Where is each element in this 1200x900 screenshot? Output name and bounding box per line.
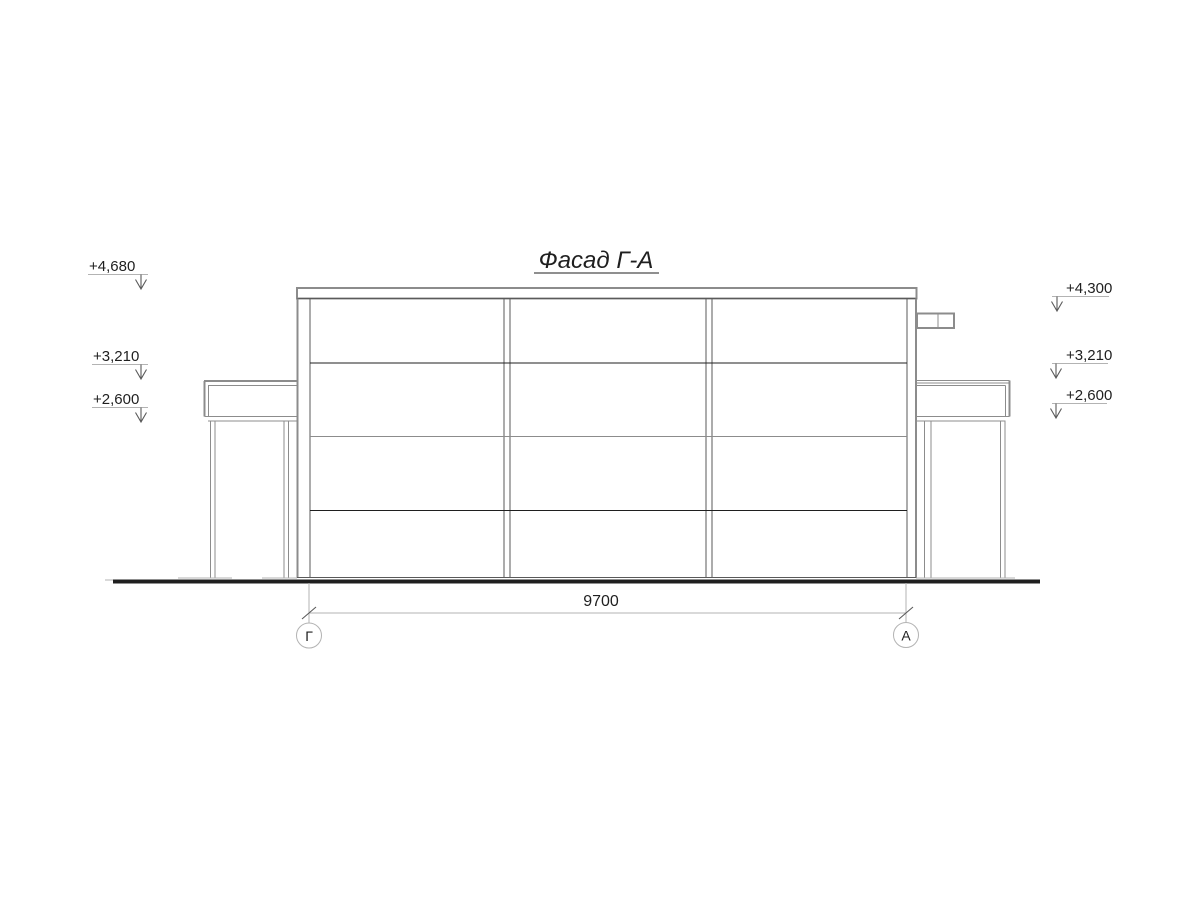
dimension-9700: 9700 (302, 583, 913, 624)
page-title: Фасад Г-А (539, 247, 654, 274)
axis-marker-right: А (894, 623, 919, 648)
elevation-mark-left-3210: +3,210 (92, 348, 148, 379)
ground (105, 578, 1040, 582)
elevation-arrow-icon (136, 408, 147, 423)
elevation-mark-right-3210: +3,210 (1051, 347, 1113, 378)
elevation-arrow-icon (1052, 297, 1063, 312)
elevation-arrow-icon (1051, 364, 1062, 379)
facade-horizontal-lines (310, 363, 907, 511)
elevation-drawing-sheet: Фасад Г-А (0, 0, 1200, 900)
axis-label: Г (305, 628, 313, 644)
facade-drawing: Фасад Г-А (0, 0, 1200, 900)
elevation-value: +3,210 (93, 348, 139, 365)
elevation-mark-left-2600: +2,600 (92, 391, 148, 422)
elevation-mark-right-4300: +4,300 (1052, 280, 1113, 311)
elevation-arrow-icon (136, 275, 147, 290)
pipe-body (917, 314, 954, 329)
axis-marker-left: Г (297, 623, 322, 648)
axis-label: А (901, 628, 911, 644)
elevation-mark-left-4680: +4,680 (88, 258, 148, 289)
parapet-band (297, 288, 917, 299)
roof-pipe-protrusion (917, 314, 954, 329)
right-canopy (916, 381, 1010, 579)
elevation-value: +4,300 (1066, 280, 1112, 297)
elevation-value: +3,210 (1066, 347, 1112, 364)
left-canopy-columns (211, 421, 289, 578)
dim-value: 9700 (583, 593, 619, 610)
elevation-arrow-icon (136, 365, 147, 380)
elevation-value: +2,600 (1066, 387, 1112, 404)
facade-mullions (504, 299, 712, 578)
elevation-arrow-icon (1051, 404, 1062, 419)
main-building (297, 288, 954, 578)
right-canopy-columns (925, 421, 1006, 578)
drawing-title: Фасад Г-А (534, 247, 659, 274)
elevation-mark-right-2600: +2,600 (1051, 387, 1113, 418)
elevation-value: +4,680 (89, 258, 135, 275)
left-canopy (204, 381, 298, 578)
elevation-value: +2,600 (93, 391, 139, 408)
